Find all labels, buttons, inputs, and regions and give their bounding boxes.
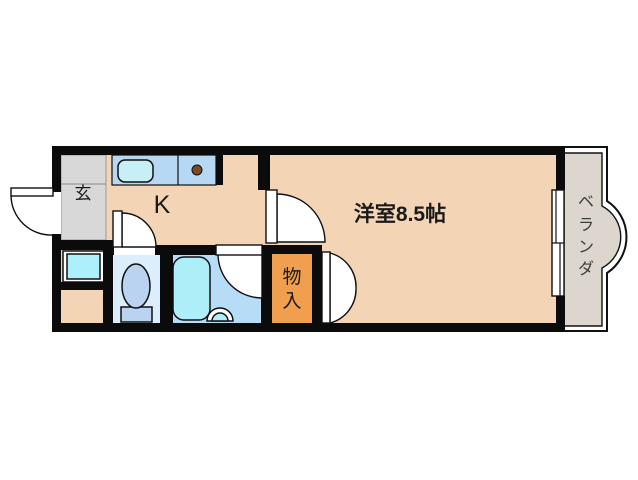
entrance-door-leaf xyxy=(11,188,53,196)
toilet-door-leaf xyxy=(113,211,122,247)
washer-pan-inner xyxy=(67,254,100,279)
kitchen-label: K xyxy=(154,191,171,219)
closet-label-char1: 物 xyxy=(282,266,301,288)
floor-plan: ベ ラ ン ダ xyxy=(0,0,638,480)
wall-top xyxy=(52,146,565,155)
wall-closet-right xyxy=(312,245,322,323)
closet-label-char2: 入 xyxy=(282,291,301,312)
main-room-label: 洋室8.5帖 xyxy=(354,202,446,226)
wall-below-washer xyxy=(52,282,107,290)
bathroom-door-leaf xyxy=(216,245,262,255)
closet-door-leaf xyxy=(322,252,330,323)
entrance-opening xyxy=(52,192,61,234)
balcony-window xyxy=(552,190,564,296)
stove-burner-icon xyxy=(192,165,202,175)
wall-closet-top xyxy=(261,245,312,254)
kitchen-sink xyxy=(118,160,153,182)
wall-right-lower xyxy=(556,296,565,332)
bathtub xyxy=(173,257,210,320)
toilet-room xyxy=(113,255,160,323)
kitchen-door-leaf xyxy=(266,190,277,243)
washer-pan xyxy=(63,251,104,282)
balcony-label-char2: ラ xyxy=(578,217,594,234)
wall-bottom xyxy=(52,323,565,332)
wall-right-upper xyxy=(556,146,565,190)
toilet-tank xyxy=(121,307,152,322)
toilet-bowl xyxy=(122,264,150,308)
balcony-label-char1: ベ xyxy=(578,194,594,211)
wall-kitchen-room-divider xyxy=(258,146,270,190)
entrance-label: 玄 xyxy=(75,184,92,203)
balcony-label-char4: ダ xyxy=(578,260,594,278)
wall-toilet-bath xyxy=(160,245,173,323)
balcony-label-char3: ン xyxy=(578,239,594,256)
wall-counter-stub xyxy=(216,146,223,185)
wall-left-upper xyxy=(52,146,61,192)
kitchen-counter xyxy=(112,155,216,185)
wall-entrance-bottom xyxy=(56,240,107,250)
